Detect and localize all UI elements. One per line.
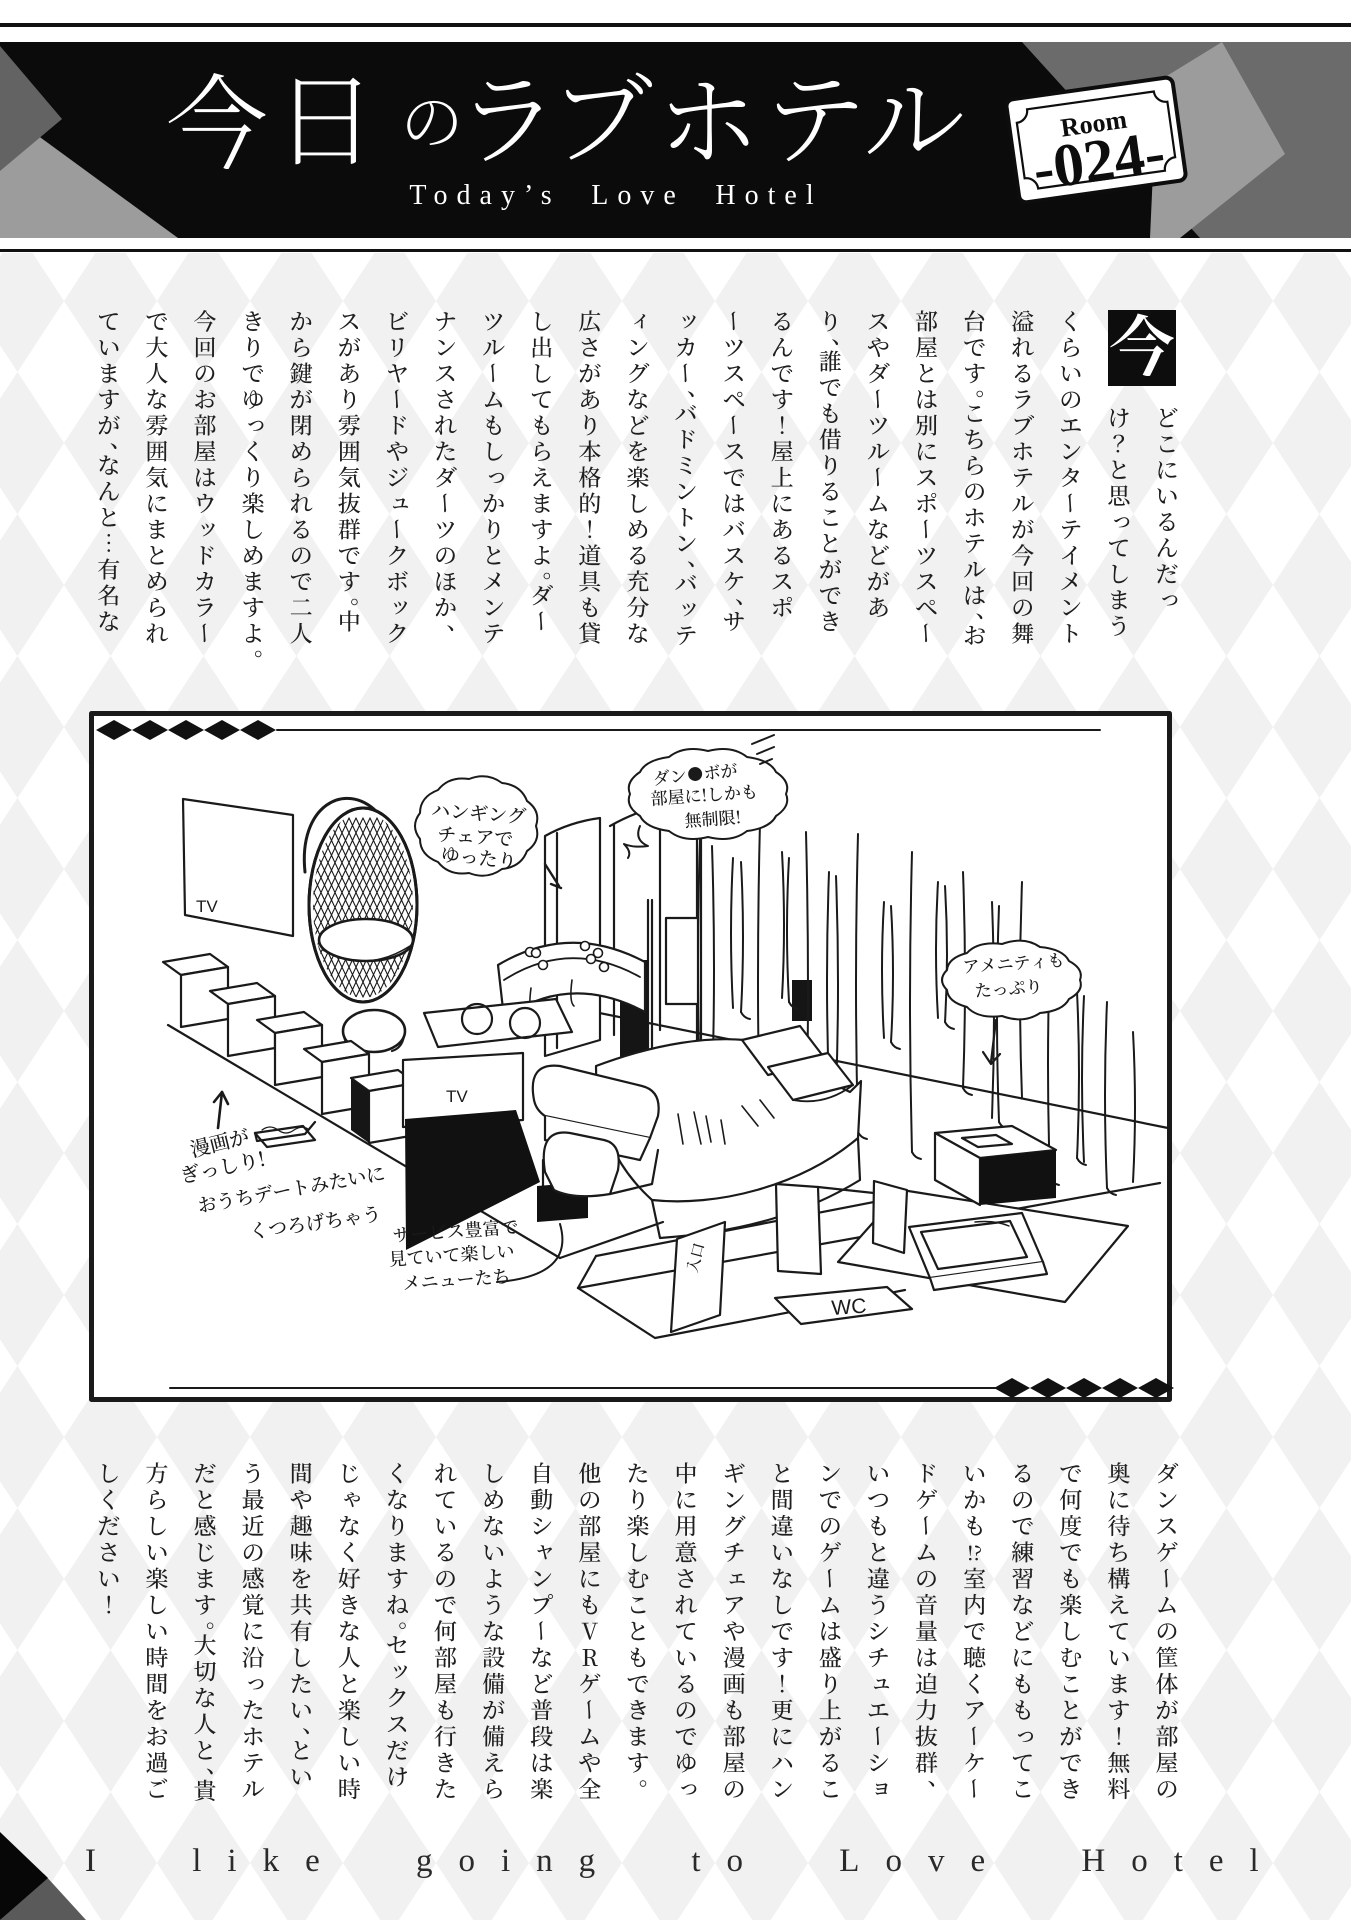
svg-text:WC: WC <box>831 1295 868 1320</box>
svg-text:TV: TV <box>446 1087 468 1106</box>
svg-text:TV: TV <box>196 897 218 916</box>
